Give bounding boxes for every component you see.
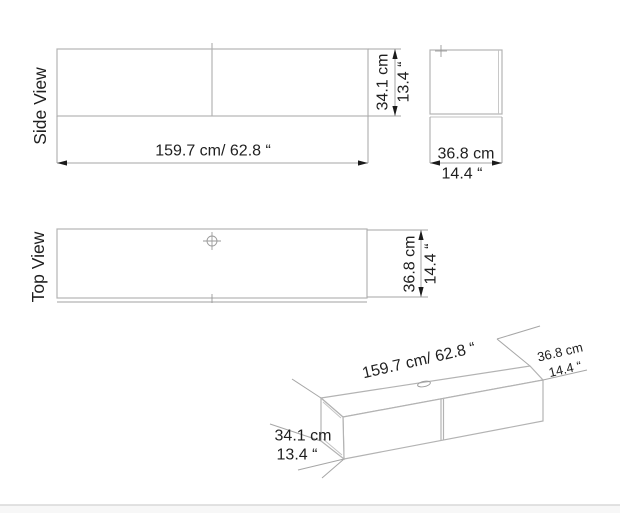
end-view-width-in-label: 14.4 “ — [442, 166, 483, 183]
footer-background — [0, 506, 620, 513]
top-view: Top View 36.8 cm 14.4 “ — [28, 229, 440, 303]
extension-line — [292, 379, 321, 398]
side-view-length-dimension-label: 159.7 cm/ 62.8 “ — [155, 143, 271, 160]
arrow-left-icon — [57, 160, 67, 165]
end-view: 36.8 cm 14.4 “ — [430, 45, 502, 183]
extension-line — [497, 339, 530, 366]
end-view-panel-outline — [430, 50, 502, 114]
extension-line — [497, 326, 540, 339]
arrow-up-icon — [418, 230, 423, 240]
arrow-right-icon — [358, 160, 368, 165]
arrow-up-icon — [392, 49, 397, 59]
top-view-depth-in-label: 14.4 “ — [423, 244, 440, 285]
top-view-depth-cm-label: 36.8 cm — [402, 236, 419, 293]
arrow-down-icon — [418, 287, 423, 297]
arrow-down-icon — [392, 106, 397, 116]
end-view-width-cm-label: 36.8 cm — [438, 146, 495, 163]
side-view-height-cm-label: 34.1 cm — [375, 54, 392, 111]
side-view: Side View 159.7 cm/ 62.8 “ 34.1 cm 13.4 … — [30, 43, 413, 166]
product-dimensions-diagram: Side View 159.7 cm/ 62.8 “ 34.1 cm 13.4 … — [0, 0, 620, 513]
footer-strip — [0, 505, 620, 513]
iso-view: 159.7 cm/ 62.8 “ 36.8 cm 14.4 “ 34.1 cm … — [270, 326, 587, 478]
side-view-label: Side View — [30, 67, 50, 145]
iso-length-label: 159.7 cm/ 62.8 “ — [361, 340, 477, 383]
iso-height-in-label: 13.4 “ — [277, 447, 318, 464]
iso-height-cm-label: 34.1 cm — [275, 428, 332, 445]
dimensions-drawing: Side View 159.7 cm/ 62.8 “ 34.1 cm 13.4 … — [0, 0, 620, 513]
top-view-label: Top View — [28, 231, 48, 302]
side-view-height-in-label: 13.4 “ — [396, 62, 413, 103]
